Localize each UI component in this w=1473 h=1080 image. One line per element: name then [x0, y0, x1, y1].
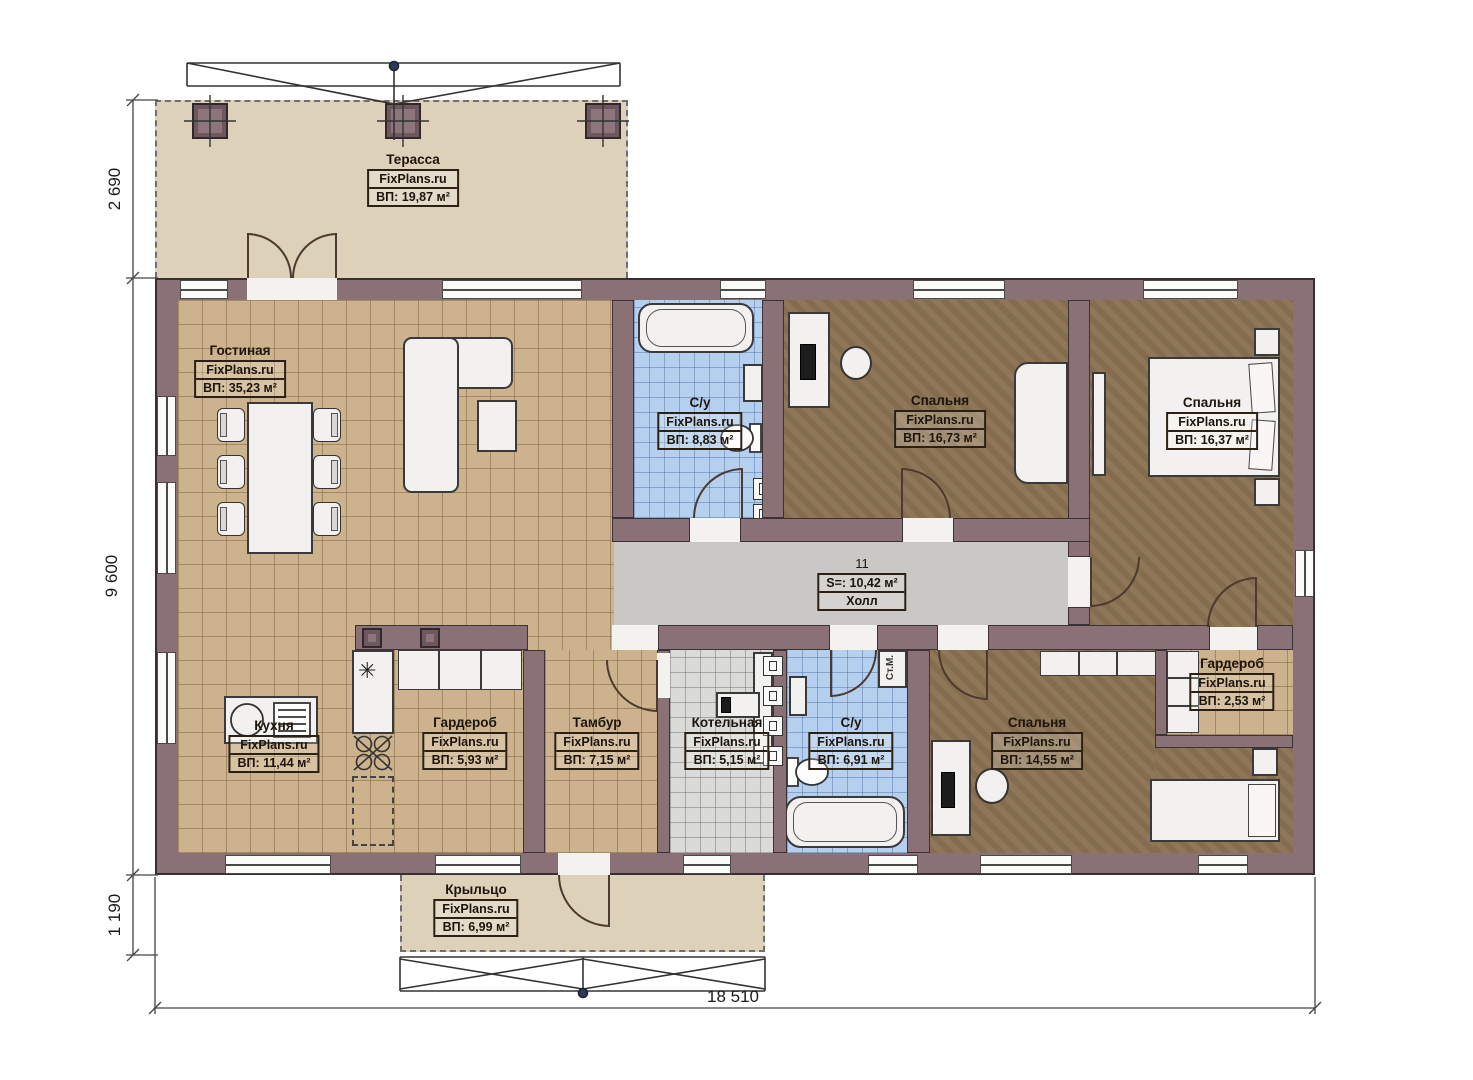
room-number: 11	[817, 556, 906, 571]
brand-watermark: FixPlans.ru	[896, 412, 984, 428]
monitor	[800, 344, 816, 380]
room-label-bedroom3: Спальня FixPlans.ruВП: 14,55 м²	[991, 715, 1083, 770]
bath1-door-opening	[690, 518, 740, 542]
corner-sofa-seat	[403, 337, 459, 493]
room-label-bedroom2: Спальня FixPlans.ruВП: 16,37 м²	[1166, 395, 1258, 450]
room-label-bedroom1: Спальня FixPlans.ruВП: 16,73 м²	[894, 393, 986, 448]
room-name: Терасса	[367, 152, 459, 167]
room-name: Гостиная	[194, 343, 286, 358]
terrace-door-opening	[247, 278, 337, 300]
window	[868, 855, 918, 874]
dining-chair	[217, 408, 245, 442]
room-name: Спальня	[894, 393, 986, 408]
dining-table	[247, 402, 313, 554]
brand-watermark: FixPlans.ru	[424, 734, 505, 750]
brand-watermark: FixPlans.ru	[659, 414, 740, 430]
sink	[743, 364, 763, 402]
bed-pillow	[1248, 784, 1276, 837]
wall	[1257, 625, 1293, 650]
wardrobe-strip	[1092, 372, 1106, 476]
room-area: ВП: 16,73 м²	[896, 428, 984, 446]
dining-chair	[217, 455, 245, 489]
room-name: Гардероб	[1189, 656, 1274, 671]
dining-chair	[313, 502, 341, 536]
wall	[953, 518, 1090, 542]
side-table	[477, 400, 517, 452]
dim-total-width: 18 510	[707, 987, 759, 1006]
room-label-terrace: Терасса FixPlans.ruВП: 19,87 м²	[367, 152, 459, 207]
window	[980, 855, 1072, 874]
room-area: ВП: 7,15 м²	[556, 750, 637, 768]
brand-watermark: FixPlans.ru	[369, 171, 457, 187]
brand-watermark: FixPlans.ru	[1168, 414, 1256, 430]
room-area: ВП: 19,87 м²	[369, 187, 457, 205]
sink	[789, 676, 807, 716]
dim-porch-height: 1 190	[105, 894, 124, 937]
brand-watermark: FixPlans.ru	[810, 734, 891, 750]
desk-chair	[975, 768, 1009, 804]
boiler-burner	[721, 697, 731, 713]
window	[225, 855, 331, 874]
room-area: ВП: 16,37 м²	[1168, 430, 1256, 448]
window	[442, 280, 582, 299]
room-area: ВП: 5,15 м²	[686, 750, 767, 768]
wall-pillar	[362, 628, 382, 648]
dining-chair	[217, 502, 245, 536]
wall	[762, 300, 784, 518]
window	[1198, 855, 1248, 874]
monitor	[941, 772, 955, 808]
terrace-column	[385, 103, 421, 139]
window	[913, 280, 1005, 299]
room-name: Гардероб	[422, 715, 507, 730]
terrace-column	[585, 103, 621, 139]
room-area: S=: 10,42 м²	[819, 575, 904, 591]
room-label-hall: 11 S=: 10,42 м²Холл	[817, 556, 906, 611]
window	[1295, 550, 1314, 597]
room-name: Спальня	[991, 715, 1083, 730]
bedroom1-door-opening	[903, 518, 953, 542]
room-label-bath2: С/у FixPlans.ruВП: 6,91 м²	[808, 715, 893, 770]
tambur-door-opening	[612, 625, 658, 650]
wall	[988, 625, 1210, 650]
room-label-wardrobe2: Гардероб FixPlans.ruВП: 2,53 м²	[1189, 656, 1274, 711]
bedroom2-door-opening	[1068, 557, 1090, 607]
room-name: С/у	[808, 715, 893, 730]
bath2-door-opening	[830, 625, 877, 650]
window	[1143, 280, 1238, 299]
wardrobe1-shelves	[398, 650, 522, 690]
window	[157, 652, 176, 744]
room-name: Кухня	[228, 718, 319, 733]
room-area: ВП: 35,23 м²	[196, 378, 284, 396]
dim-house-height: 9 600	[102, 555, 121, 598]
window	[720, 280, 766, 299]
porch-truss	[400, 957, 765, 998]
room-label-boiler: Котельная FixPlans.ruВП: 5,15 м²	[684, 715, 769, 770]
brand-watermark: FixPlans.ru	[686, 734, 767, 750]
light-symbol: ✳	[358, 658, 376, 684]
wall	[1155, 735, 1293, 748]
floor-plan: ✳ Ст.М.	[0, 0, 1473, 1080]
dining-chair	[313, 408, 341, 442]
room-name: Тамбур	[554, 715, 639, 730]
room-label-kitchen: Кухня FixPlans.ruВП: 11,44 м²	[228, 718, 319, 773]
wardrobe2-door-opening	[1210, 627, 1257, 650]
room-label-tambur: Тамбур FixPlans.ruВП: 7,15 м²	[554, 715, 639, 770]
room-area: ВП: 5,93 м²	[424, 750, 505, 768]
wall-pillar	[420, 628, 440, 648]
room-name: Спальня	[1166, 395, 1258, 410]
room-name: Котельная	[684, 715, 769, 730]
room-label-bath1: С/у FixPlans.ruВП: 8,83 м²	[657, 395, 742, 450]
bathtub-inner	[646, 309, 746, 347]
wall	[1068, 607, 1090, 625]
brand-watermark: FixPlans.ru	[196, 362, 284, 378]
brand-watermark: FixPlans.ru	[435, 901, 516, 917]
room-name: С/у	[657, 395, 742, 410]
nightstand	[1254, 328, 1280, 356]
window	[157, 482, 176, 574]
brand-watermark: FixPlans.ru	[556, 734, 637, 750]
desk-chair	[840, 346, 872, 380]
wall	[877, 625, 938, 650]
nightstand	[1252, 748, 1278, 776]
window	[157, 396, 176, 456]
window	[180, 280, 228, 299]
room-area: ВП: 11,44 м²	[230, 753, 317, 771]
bedroom3-cabinets	[1040, 651, 1156, 676]
wall	[523, 650, 545, 853]
dining-chair	[313, 455, 341, 489]
wall	[740, 518, 903, 542]
brand-watermark: FixPlans.ru	[1191, 675, 1272, 691]
room-label-porch: Крыльцо FixPlans.ruВП: 6,99 м²	[433, 882, 518, 937]
boiler-door-opening	[657, 653, 670, 698]
terrace-column	[192, 103, 228, 139]
room-area: ВП: 6,99 м²	[435, 917, 516, 935]
boiler-shaft	[763, 686, 783, 706]
room-name: Холл	[819, 591, 904, 609]
window	[435, 855, 521, 874]
room-area: ВП: 14,55 м²	[993, 750, 1081, 768]
wall	[1155, 650, 1167, 735]
washing-machine-label: Ст.М.	[885, 655, 896, 680]
wall	[907, 650, 930, 853]
room-area: ВП: 6,91 м²	[810, 750, 891, 768]
room-area: ВП: 2,53 м²	[1191, 691, 1272, 709]
brand-watermark: FixPlans.ru	[993, 734, 1081, 750]
brand-watermark: FixPlans.ru	[230, 737, 317, 753]
bedroom3-door-opening	[938, 625, 988, 650]
dishwasher-dashed	[352, 776, 394, 846]
room-label-wardrobe1: Гардероб FixPlans.ruВП: 5,93 м²	[422, 715, 507, 770]
dim-terrace-height: 2 690	[105, 168, 124, 211]
loveseat	[1014, 362, 1068, 484]
nightstand	[1254, 478, 1280, 506]
window	[683, 855, 731, 874]
room-label-living: Гостиная FixPlans.ruВП: 35,23 м²	[194, 343, 286, 398]
entrance-door-opening	[558, 853, 610, 875]
bathtub-inner	[793, 802, 897, 842]
boiler-shaft	[763, 656, 783, 676]
wall	[612, 300, 634, 518]
room-name: Крыльцо	[433, 882, 518, 897]
wall	[658, 625, 830, 650]
wall	[612, 518, 690, 542]
room-area: ВП: 8,83 м²	[659, 430, 740, 448]
